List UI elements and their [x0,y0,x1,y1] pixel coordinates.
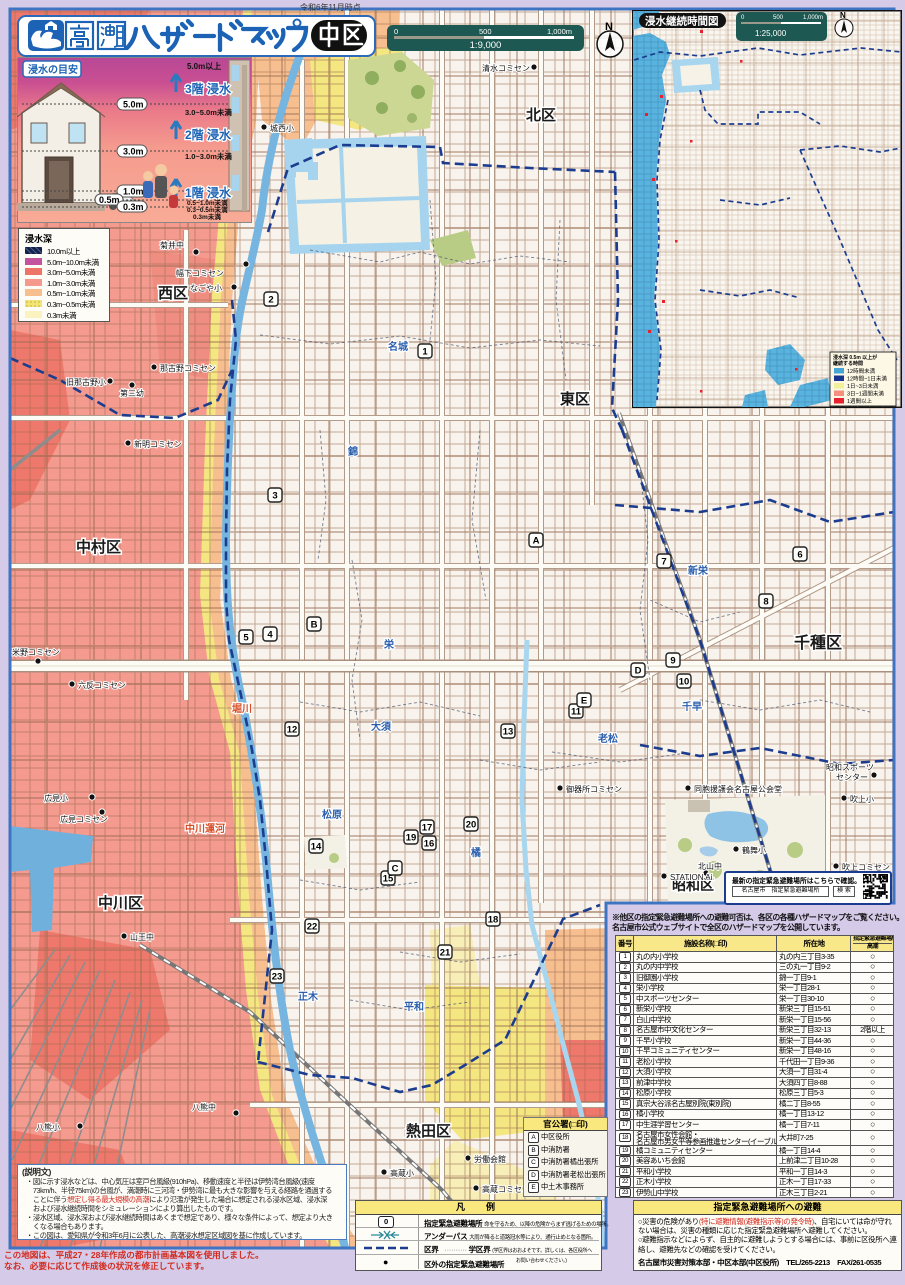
svg-text:9: 9 [670,656,675,667]
svg-text:幅下コミセン: 幅下コミセン [176,268,224,278]
svg-text:名城: 名城 [388,340,408,353]
svg-text:広見コミセン: 広見コミセン [60,814,108,824]
svg-text:同胞援護会名古屋公会堂: 同胞援護会名古屋公会堂 [694,784,782,794]
svg-text:A: A [533,536,540,547]
svg-text:22: 22 [307,922,318,933]
svg-text:中川運河: 中川運河 [185,822,225,835]
svg-text:橘: 橘 [470,846,481,859]
svg-text:3日~1週間未満: 3日~1週間未満 [847,390,884,398]
svg-text:0.3m: 0.3m [123,202,144,212]
svg-text:14: 14 [311,842,322,853]
svg-text:浸水の目安: 浸水の目安 [28,63,78,76]
svg-text:2階 浸水: 2階 浸水 [185,127,232,142]
svg-text:1: 1 [422,347,428,358]
svg-text:老松: 老松 [597,732,618,745]
svg-text:八熊中: 八熊中 [192,1102,216,1112]
svg-text:高蔵小: 高蔵小 [390,1168,414,1178]
svg-text:6: 6 [797,550,802,561]
svg-text:1,000m: 1,000m [803,15,823,21]
svg-text:浸水継続時間図: 浸水継続時間図 [645,15,719,28]
svg-text:8: 8 [763,597,768,608]
svg-text:第三幼: 第三幼 [120,388,144,398]
svg-text:21: 21 [440,948,451,959]
svg-text:那古野コミセン: 那古野コミセン [160,363,216,373]
svg-text:E: E [581,696,587,707]
svg-text:堀川: 堀川 [232,702,252,715]
svg-text:なごや小: なごや小 [190,283,222,293]
svg-text:正木: 正木 [298,990,319,1003]
svg-text:六反コミセン: 六反コミセン [78,680,126,690]
svg-text:センター: センター [836,773,868,782]
svg-text:旧那古野小: 旧那古野小 [66,377,106,387]
svg-text:東区: 東区 [560,390,590,408]
svg-text:吹上小: 吹上小 [850,794,874,804]
svg-text:0.5m: 0.5m [99,195,120,205]
svg-text:20: 20 [466,820,477,831]
svg-text:広見小: 広見小 [44,793,68,803]
svg-text:12時間未満: 12時間未満 [847,367,876,375]
svg-text:4: 4 [267,630,273,641]
svg-text:C: C [392,864,399,875]
svg-text:13: 13 [503,727,514,738]
svg-text:清水コミセン: 清水コミセン [482,63,530,73]
svg-text:23: 23 [272,972,283,983]
svg-text:平和: 平和 [404,1000,424,1013]
svg-text:7: 7 [661,557,666,568]
svg-text:2: 2 [268,295,273,306]
svg-text:新栄: 新栄 [688,564,709,577]
svg-text:労働会館: 労働会館 [474,1154,506,1164]
svg-text:新明コミセン: 新明コミセン [134,439,182,449]
svg-text:西区: 西区 [158,285,188,302]
svg-text:D: D [635,666,642,677]
svg-text:18: 18 [488,915,499,926]
svg-text:10: 10 [679,677,690,688]
svg-text:千早: 千早 [682,700,702,713]
svg-text:城西小: 城西小 [270,124,294,133]
svg-text:錦: 錦 [347,445,358,458]
svg-text:山王中: 山王中 [130,932,154,942]
svg-text:1:25,000: 1:25,000 [755,29,787,38]
svg-text:17: 17 [422,823,433,834]
svg-text:5.0m以上: 5.0m以上 [187,61,221,71]
svg-text:0.3m未満: 0.3m未満 [193,212,221,221]
svg-text:0.3~0.5m未満: 0.3~0.5m未満 [187,205,228,214]
svg-text:3: 3 [272,491,277,502]
svg-text:御器所コミセン: 御器所コミセン [566,784,622,794]
svg-text:16: 16 [424,839,435,850]
svg-text:北山中: 北山中 [698,861,722,871]
svg-text:昭和スポーツ: 昭和スポーツ [826,763,874,772]
svg-text:12: 12 [287,725,298,736]
svg-text:3.0m: 3.0m [123,147,144,157]
svg-text:1週間以上: 1週間以上 [847,397,873,405]
svg-text:12時間~1日未満: 12時間~1日未満 [847,375,887,383]
svg-text:浸水深 0.5m 以上が: 浸水深 0.5m 以上が [833,354,877,361]
svg-text:B: B [311,620,318,631]
svg-text:1.0~3.0m未満: 1.0~3.0m未満 [185,151,232,161]
svg-text:八熊小: 八熊小 [36,1122,60,1132]
svg-text:11: 11 [571,707,582,718]
svg-text:3.0~5.0m未満: 3.0~5.0m未満 [185,107,232,117]
svg-text:千種区: 千種区 [794,633,842,652]
svg-text:松原: 松原 [322,808,342,821]
svg-text:中村区: 中村区 [76,538,121,556]
svg-text:1日~3日未満: 1日~3日未満 [847,382,879,390]
svg-text:中川区: 中川区 [98,894,143,912]
svg-text:継続する時間: 継続する時間 [833,360,863,367]
svg-text:STATION Ai: STATION Ai [670,873,713,882]
svg-text:大須: 大須 [371,720,392,733]
svg-text:19: 19 [406,833,417,844]
svg-text:米野コミセン: 米野コミセン [12,647,60,657]
svg-text:栄: 栄 [383,638,395,651]
svg-text:5.0m: 5.0m [123,100,144,110]
svg-text:熱田区: 熱田区 [406,1122,451,1140]
svg-text:鶴舞小: 鶴舞小 [742,845,766,855]
svg-text:500: 500 [773,15,784,21]
svg-text:5: 5 [243,633,249,644]
svg-text:1.0m: 1.0m [123,187,144,197]
svg-text:0.5~1.0m未満: 0.5~1.0m未満 [187,198,228,207]
svg-text:1階 浸水: 1階 浸水 [185,185,232,200]
svg-text:3階 浸水: 3階 浸水 [185,81,232,96]
svg-text:北区: 北区 [526,107,556,124]
svg-text:菊井中: 菊井中 [160,240,184,250]
